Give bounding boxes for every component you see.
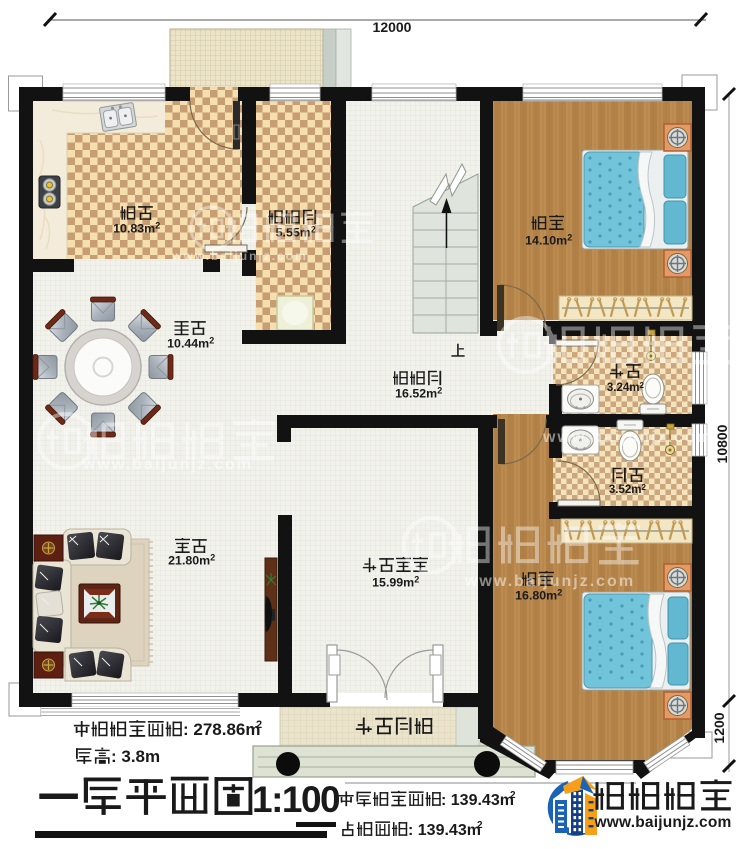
svg-text:14.10m2: 14.10m2	[525, 232, 572, 247]
svg-text:1200: 1200	[711, 712, 727, 743]
svg-text:10.44m2: 10.44m2	[167, 335, 214, 350]
svg-text:16.52m2: 16.52m2	[395, 385, 442, 400]
svg-text:: 278.86m: : 278.86m	[183, 720, 261, 739]
svg-text:12000: 12000	[373, 19, 412, 35]
svg-text:: 139.43m: : 139.43m	[408, 822, 481, 839]
svg-text:www.baijunjz.com: www.baijunjz.com	[464, 573, 635, 590]
svg-text:: 139.43m: : 139.43m	[441, 792, 514, 809]
svg-text:10.83m2: 10.83m2	[113, 220, 160, 235]
svg-text:10800: 10800	[714, 424, 730, 463]
svg-text:www.baijunjz.com: www.baijunjz.com	[82, 456, 253, 473]
svg-text:2: 2	[510, 790, 516, 801]
svg-text:www.baijunjz.com: www.baijunjz.com	[594, 814, 732, 831]
svg-text:www.baijunjz.com: www.baijunjz.com	[542, 429, 713, 446]
svg-text:15.99m2: 15.99m2	[372, 574, 419, 589]
svg-text:21.80m2: 21.80m2	[168, 552, 215, 567]
svg-text:: 3.8m: : 3.8m	[111, 747, 160, 766]
svg-text:2: 2	[477, 820, 483, 831]
svg-text:1:100: 1:100	[252, 779, 340, 820]
svg-text:2: 2	[256, 719, 262, 731]
svg-text:www.baijunjz.com: www.baijunjz.com	[171, 249, 308, 263]
svg-text:3.52m2: 3.52m2	[609, 483, 647, 496]
svg-text:3.24m2: 3.24m2	[607, 381, 645, 394]
